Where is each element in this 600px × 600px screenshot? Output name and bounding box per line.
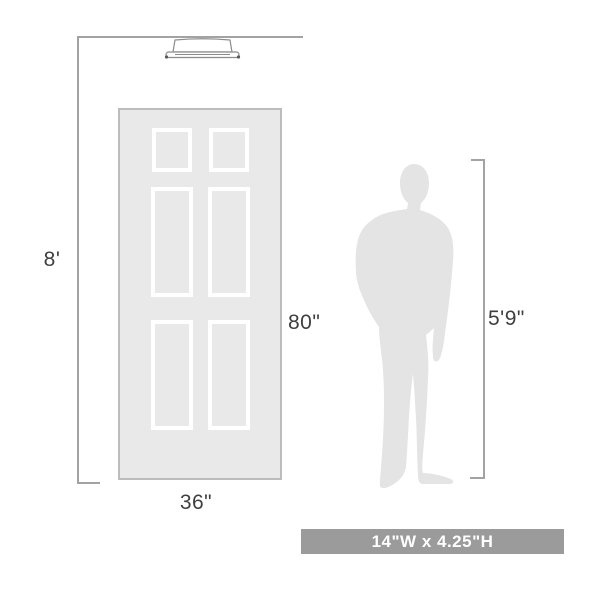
door-panel — [151, 320, 193, 430]
door-panel — [209, 128, 249, 172]
door-panel — [152, 128, 192, 172]
door-width-label: 36" — [166, 491, 226, 515]
person-silhouette-icon — [340, 150, 470, 490]
fixture-size-banner: 14"W x 4.25"H — [301, 529, 564, 554]
door-panel — [208, 187, 250, 297]
ceiling-height-label: 8' — [30, 248, 74, 272]
door-panel — [151, 187, 193, 297]
person-height-dimension-line — [483, 159, 485, 479]
ceiling-height-tick-bottom — [78, 482, 100, 484]
product-dimensions-diagram: 8' 80" 36" 5'9" 14"W x 4.25"H — [0, 0, 600, 600]
person-height-tick-bottom — [470, 477, 483, 479]
door-panel — [208, 320, 250, 430]
door-height-label: 80" — [288, 311, 340, 335]
person-height-label: 5'9" — [488, 307, 540, 331]
flush-mount-ceiling-light-icon — [160, 37, 245, 61]
fixture-size-text: 14"W x 4.25"H — [372, 532, 494, 552]
ceiling-height-dimension-line — [77, 36, 79, 484]
person-height-tick-top — [471, 159, 483, 161]
six-panel-door-illustration — [118, 108, 282, 480]
